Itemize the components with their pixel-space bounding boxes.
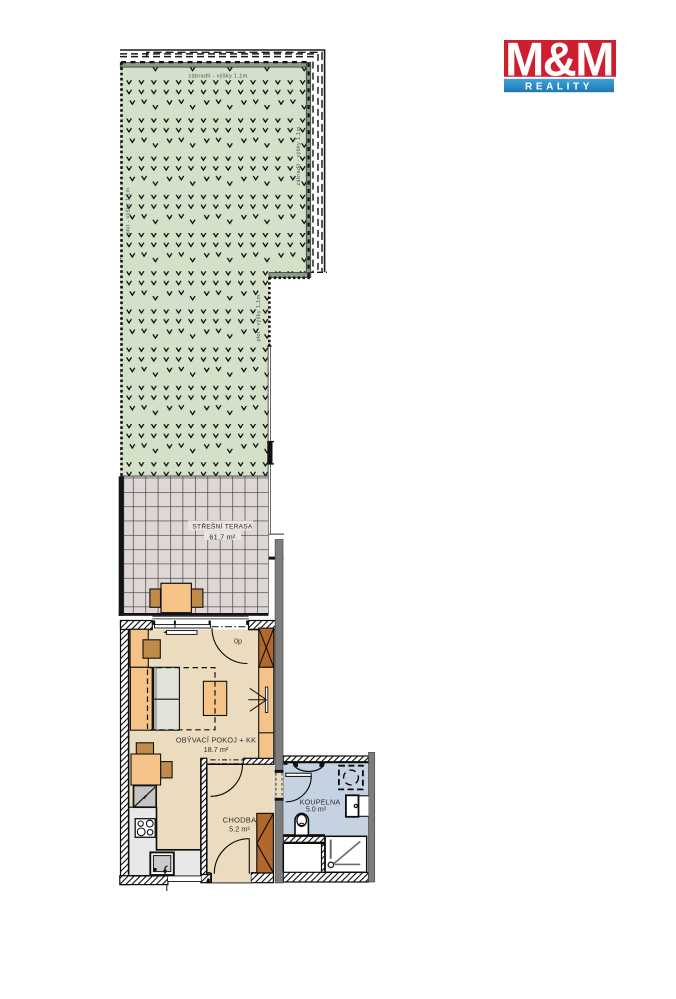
svg-text:CHODBA: CHODBA	[223, 816, 257, 825]
svg-text:M&M: M&M	[505, 33, 613, 86]
svg-text:OBÝVACÍ POKOJ + KK: OBÝVACÍ POKOJ + KK	[176, 736, 256, 745]
svg-text:plot - výšky 1,1m: plot - výšky 1,1m	[256, 294, 262, 341]
svg-text:plot - výšky 1,1m: plot - výšky 1,1m	[125, 187, 131, 234]
svg-text:zábradlí - výšky 1,1m: zábradlí - výšky 1,1m	[188, 74, 247, 80]
svg-text:5.0 m²: 5.0 m²	[306, 805, 327, 814]
svg-text:STŘEŠNÍ TERASA: STŘEŠNÍ TERASA	[192, 522, 253, 531]
svg-text:0p: 0p	[234, 637, 242, 646]
svg-text:5.2 m²: 5.2 m²	[229, 825, 250, 834]
svg-text:61.7 m²: 61.7 m²	[209, 533, 236, 542]
svg-text:18.7 m²: 18.7 m²	[204, 745, 229, 754]
svg-text:REALITY: REALITY	[525, 81, 593, 92]
svg-text:zábradlí - výšky 1,1m: zábradlí - výšky 1,1m	[296, 126, 302, 185]
